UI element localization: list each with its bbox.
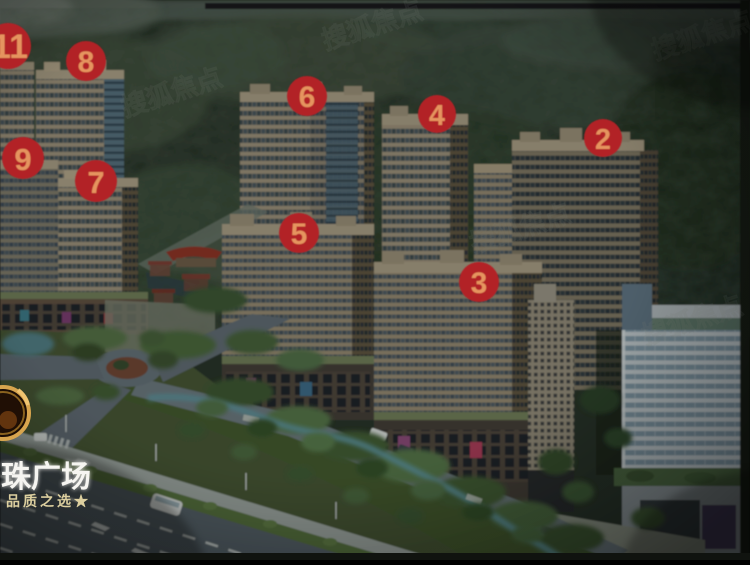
svg-text:5: 5 [291, 218, 308, 251]
svg-text:品质之选★: 品质之选★ [6, 493, 91, 509]
svg-text:8: 8 [78, 46, 95, 79]
svg-text:4: 4 [429, 100, 445, 132]
svg-text:11: 11 [0, 28, 28, 66]
svg-text:7: 7 [87, 165, 104, 200]
svg-text:6: 6 [299, 81, 316, 114]
svg-text:2: 2 [595, 124, 611, 156]
svg-text:珠广场: 珠广场 [1, 461, 91, 494]
svg-text:9: 9 [14, 142, 31, 177]
svg-text:3: 3 [471, 267, 488, 300]
